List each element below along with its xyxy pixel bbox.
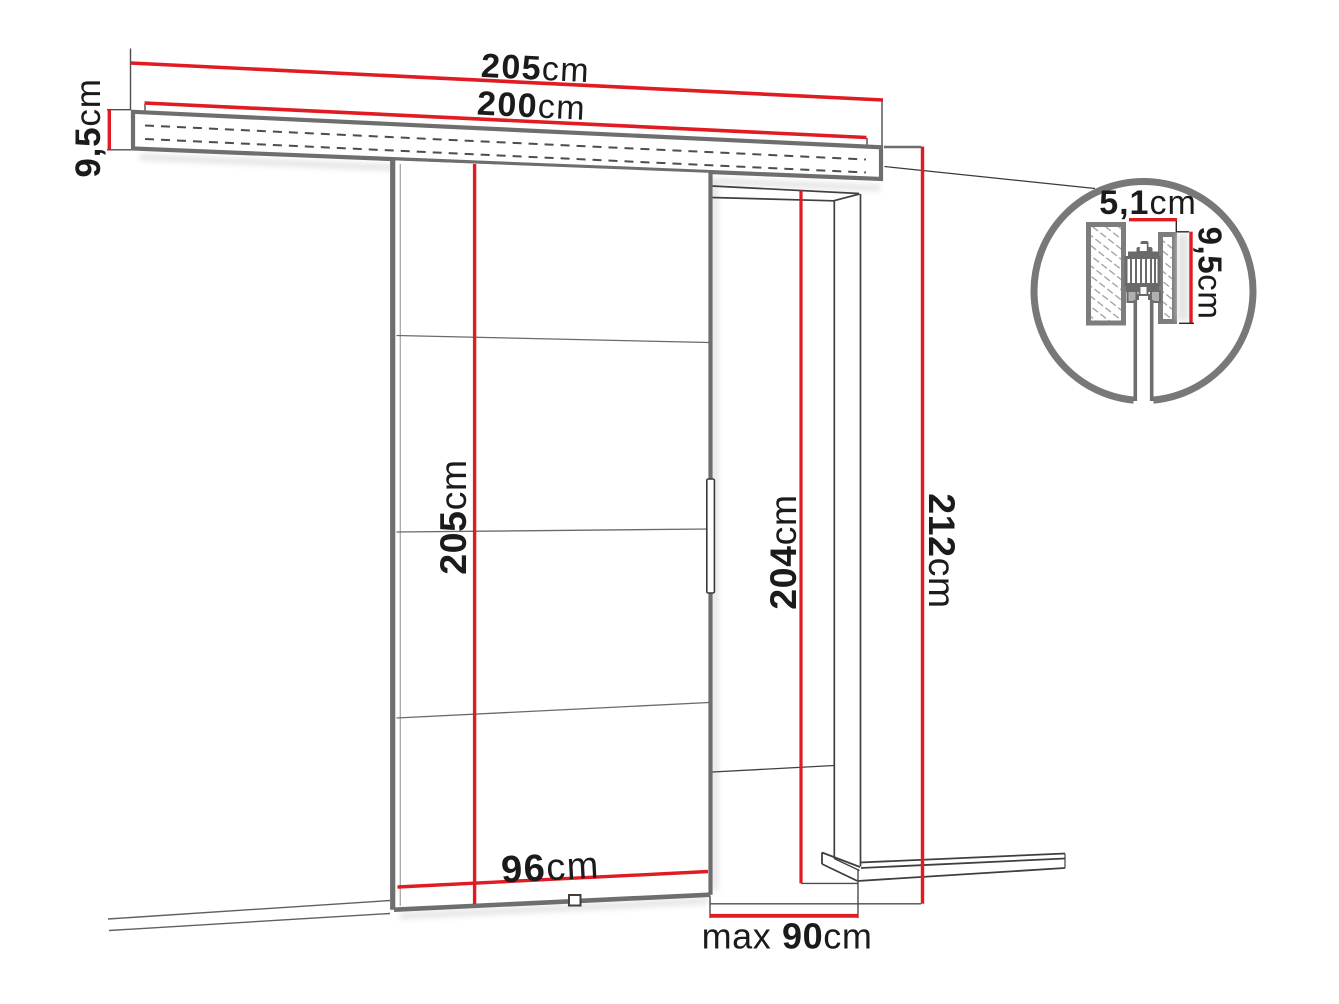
svg-text:205cm: 205cm [480, 47, 591, 90]
svg-text:9,5cm: 9,5cm [69, 78, 108, 177]
svg-text:200cm: 200cm [476, 85, 587, 128]
svg-text:204cm: 204cm [762, 494, 804, 610]
svg-text:5,1cm: 5,1cm [1099, 184, 1197, 222]
svg-text:max 90cm: max 90cm [702, 916, 873, 957]
svg-text:212cm: 212cm [921, 493, 963, 609]
svg-text:205cm: 205cm [432, 459, 474, 575]
svg-text:9,5cm: 9,5cm [1192, 227, 1229, 320]
svg-text:96cm: 96cm [500, 845, 601, 892]
